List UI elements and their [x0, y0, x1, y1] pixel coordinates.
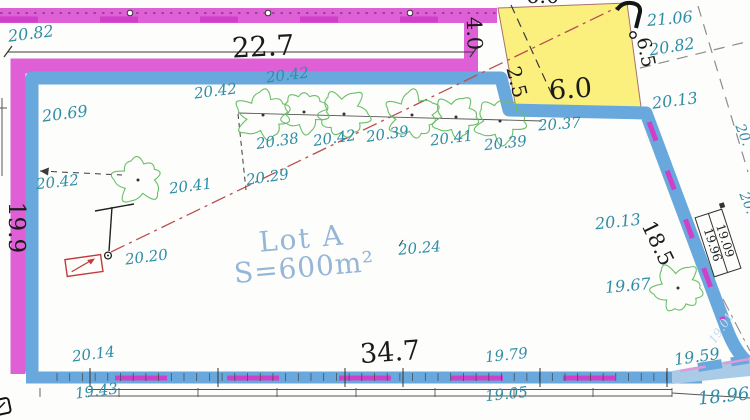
- dimension-label-6-0: 6.0: [548, 75, 593, 105]
- dimension-label-left: 19.9: [4, 202, 27, 253]
- elevation-label-20-39-b: 20.39: [483, 134, 527, 153]
- tree-center-dot: [455, 116, 458, 119]
- elevation-label-19-79: 19.79: [484, 346, 528, 365]
- dimension-label-square-top: 6.0: [526, 0, 559, 7]
- elevation-label-19-67: 19.67: [604, 276, 651, 296]
- tree-center-dot: [411, 114, 414, 117]
- tree-center-dot: [343, 113, 346, 116]
- dimension-label-6-5: 6.5: [633, 36, 658, 70]
- elevation-label-20-37: 20.37: [538, 116, 582, 134]
- dimension-label-bottom: 34.7: [359, 337, 421, 368]
- tree-center-dot: [499, 120, 502, 123]
- tree-center-dot: [303, 111, 306, 114]
- elevation-label-20-13-b: 20.13: [594, 212, 641, 233]
- red-utility-box-icon: [65, 255, 103, 277]
- cadastral-plan: 19.09 19.96 20.82 22.7 4.0 21.06 20.82 6…: [0, 0, 750, 420]
- tree-icon: [111, 157, 160, 202]
- boundary-magenta: [18, 16, 471, 374]
- dimension-label-2-5: 2.5: [503, 64, 530, 100]
- elevation-label-19-05: 19.05: [484, 385, 528, 404]
- tree-center-dot: [262, 114, 265, 117]
- elevation-label-21-06: 21.06: [646, 9, 693, 29]
- elevation-label-20-24: 20.24: [397, 239, 441, 258]
- dimension-label-gap: 4.0: [463, 16, 485, 50]
- manhole-icon: [0, 398, 11, 417]
- dimension-label-top: 22.7: [231, 31, 295, 62]
- elevation-label-20-42-d: 20.42: [35, 173, 79, 192]
- dimension-label-square-top-clip: 6.0: [524, 0, 570, 9]
- tree-center-dot: [677, 287, 680, 290]
- left-edge-lines: [0, 98, 7, 176]
- tree-icon: [650, 265, 703, 311]
- track-band-top: [0, 8, 497, 23]
- bottom-fence-lines: [88, 390, 750, 399]
- tree-center-dot: [137, 179, 140, 182]
